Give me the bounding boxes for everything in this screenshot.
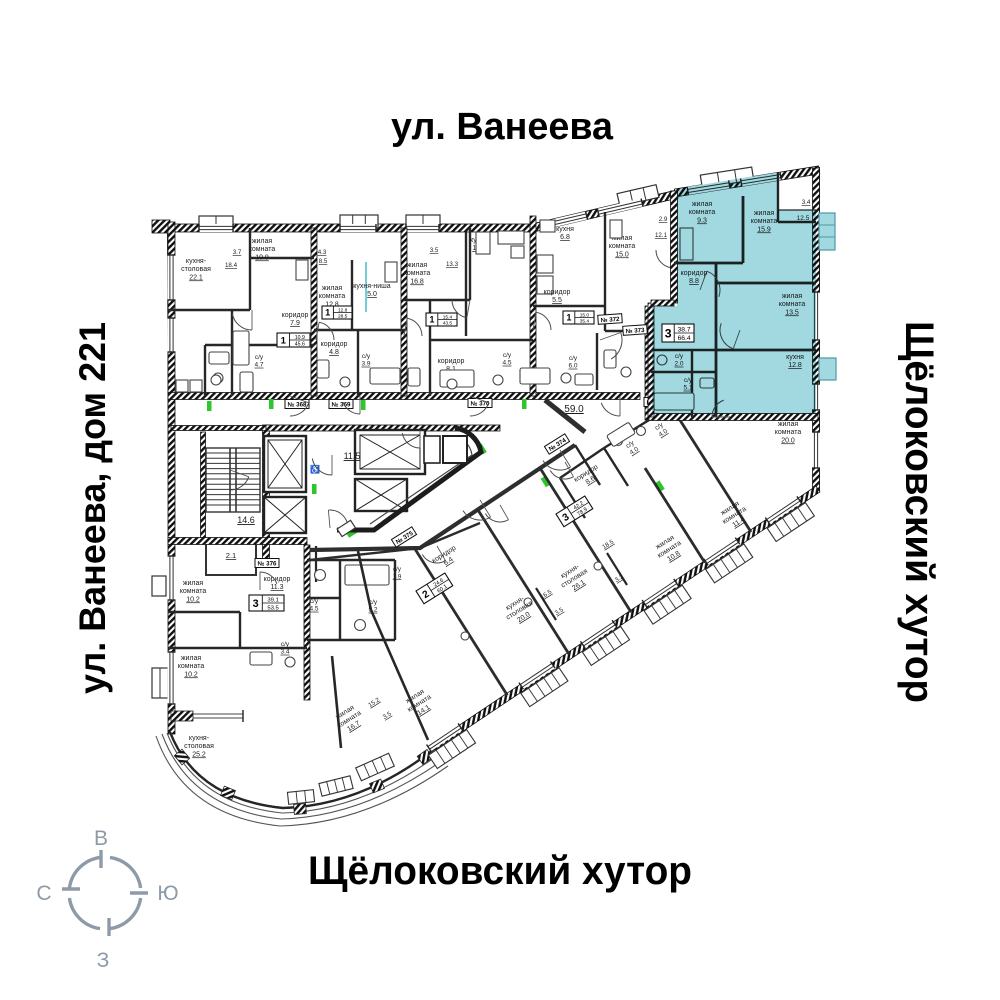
svg-text:комната: комната: [404, 270, 431, 277]
svg-text:15.4: 15.4: [443, 315, 453, 321]
svg-text:39.1: 39.1: [267, 598, 278, 604]
svg-text:8.5: 8.5: [319, 258, 328, 265]
svg-text:столовая: столовая: [184, 743, 214, 750]
svg-text:10.9: 10.9: [295, 335, 305, 341]
svg-text:35.4: 35.4: [580, 319, 590, 325]
svg-text:1: 1: [281, 335, 287, 346]
svg-text:с/у: с/у: [362, 353, 371, 360]
svg-text:С: С: [36, 882, 51, 905]
svg-text:1: 1: [429, 315, 434, 325]
svg-text:20.0: 20.0: [781, 437, 795, 444]
svg-text:№ 369: № 369: [332, 402, 351, 409]
svg-text:2.1: 2.1: [226, 551, 236, 560]
svg-text:4.7: 4.7: [254, 362, 263, 369]
svg-text:с/у: с/у: [503, 352, 512, 359]
svg-text:кухня-: кухня-: [186, 258, 207, 265]
svg-text:16.8: 16.8: [410, 278, 424, 285]
svg-text:25.2: 25.2: [192, 751, 206, 758]
svg-text:комната: комната: [609, 243, 636, 250]
svg-text:с/у: с/у: [569, 355, 578, 362]
svg-text:Щёлоковский хутор: Щёлоковский хутор: [897, 321, 941, 703]
svg-text:комната: комната: [319, 293, 346, 300]
svg-text:7.9: 7.9: [290, 320, 300, 327]
svg-text:53.5: 53.5: [267, 605, 279, 611]
svg-text:22.1: 22.1: [189, 274, 203, 281]
svg-text:12.1: 12.1: [655, 232, 668, 239]
svg-text:2.9: 2.9: [659, 216, 668, 223]
svg-text:с/у: с/у: [281, 641, 290, 648]
svg-text:столовая: столовая: [181, 266, 211, 273]
svg-text:3: 3: [665, 326, 672, 340]
svg-text:жилая: жилая: [183, 580, 204, 587]
svg-text:З: З: [97, 949, 110, 972]
svg-text:ул. Ванеева: ул. Ванеева: [391, 106, 614, 148]
svg-text:1: 1: [325, 308, 330, 318]
svg-text:4.5: 4.5: [502, 360, 511, 367]
svg-text:59.0: 59.0: [564, 404, 584, 415]
svg-text:11.5: 11.5: [344, 451, 361, 461]
svg-text:14.6: 14.6: [237, 515, 255, 525]
svg-text:4.5: 4.5: [309, 606, 318, 613]
svg-text:45.6: 45.6: [295, 342, 305, 348]
svg-text:6.8: 6.8: [560, 234, 570, 241]
svg-text:коридор: коридор: [321, 341, 348, 348]
svg-text:12.8: 12.8: [338, 308, 348, 314]
svg-text:комната: комната: [180, 588, 207, 595]
svg-text:№ 376: № 376: [258, 561, 277, 568]
svg-text:18.4: 18.4: [225, 262, 238, 269]
svg-text:коридор: коридор: [544, 289, 571, 296]
svg-text:коридор: коридор: [438, 358, 465, 365]
svg-text:ул. Ванеева, дом 221: ул. Ванеева, дом 221: [72, 322, 113, 694]
svg-text:11.3: 11.3: [270, 584, 283, 591]
svg-text:жилая: жилая: [778, 421, 799, 428]
svg-text:жилая: жилая: [407, 262, 428, 269]
svg-text:№ 373: № 373: [625, 327, 645, 335]
svg-text:10.2: 10.2: [186, 596, 200, 603]
svg-text:1.9: 1.9: [393, 573, 402, 580]
svg-text:38.7: 38.7: [678, 327, 691, 334]
svg-text:коридор: коридор: [282, 312, 309, 319]
svg-text:5.5: 5.5: [552, 297, 562, 304]
svg-text:4.8: 4.8: [329, 349, 339, 356]
svg-text:комната: комната: [775, 429, 802, 436]
svg-text:4.3: 4.3: [318, 249, 327, 256]
svg-text:6.0: 6.0: [568, 363, 577, 370]
svg-text:3.4: 3.4: [802, 199, 811, 206]
svg-text:15.0: 15.0: [580, 313, 590, 319]
svg-text:43.5: 43.5: [443, 321, 453, 327]
svg-text:кухня-: кухня-: [189, 735, 210, 742]
svg-text:15.0: 15.0: [615, 251, 629, 258]
svg-text:5.0: 5.0: [367, 291, 377, 298]
svg-text:3.4: 3.4: [280, 649, 289, 656]
svg-text:10.9: 10.9: [255, 254, 269, 261]
svg-text:3.9: 3.9: [361, 361, 370, 368]
svg-text:10.2: 10.2: [184, 671, 198, 678]
svg-text:Ю: Ю: [157, 882, 178, 905]
svg-text:13.3: 13.3: [446, 261, 459, 268]
svg-text:№ 372: № 372: [600, 316, 620, 324]
svg-text:28.5: 28.5: [338, 314, 348, 320]
svg-text:комната: комната: [249, 246, 276, 253]
svg-text:3.7: 3.7: [233, 249, 242, 256]
svg-text:В: В: [94, 827, 108, 850]
svg-text:№ 368: № 368: [288, 402, 307, 409]
svg-text:с/у: с/у: [310, 598, 319, 605]
svg-text:с/у: с/у: [393, 566, 402, 573]
svg-text:кухня: кухня: [556, 226, 574, 233]
svg-text:66.4: 66.4: [678, 335, 691, 342]
svg-text:жилая: жилая: [252, 238, 273, 245]
svg-text:Щёлоковский хутор: Щёлоковский хутор: [308, 849, 692, 893]
svg-text:1: 1: [566, 313, 571, 323]
svg-text:комната: комната: [178, 663, 205, 670]
svg-text:3.5: 3.5: [430, 247, 439, 254]
svg-text:кухня-ниша: кухня-ниша: [353, 283, 391, 290]
svg-text:с/у: с/у: [255, 354, 264, 361]
svg-text:жилая: жилая: [181, 655, 202, 662]
svg-text:жилая: жилая: [322, 285, 343, 292]
svg-text:коридор: коридор: [264, 576, 291, 583]
svg-text:3: 3: [253, 598, 259, 610]
